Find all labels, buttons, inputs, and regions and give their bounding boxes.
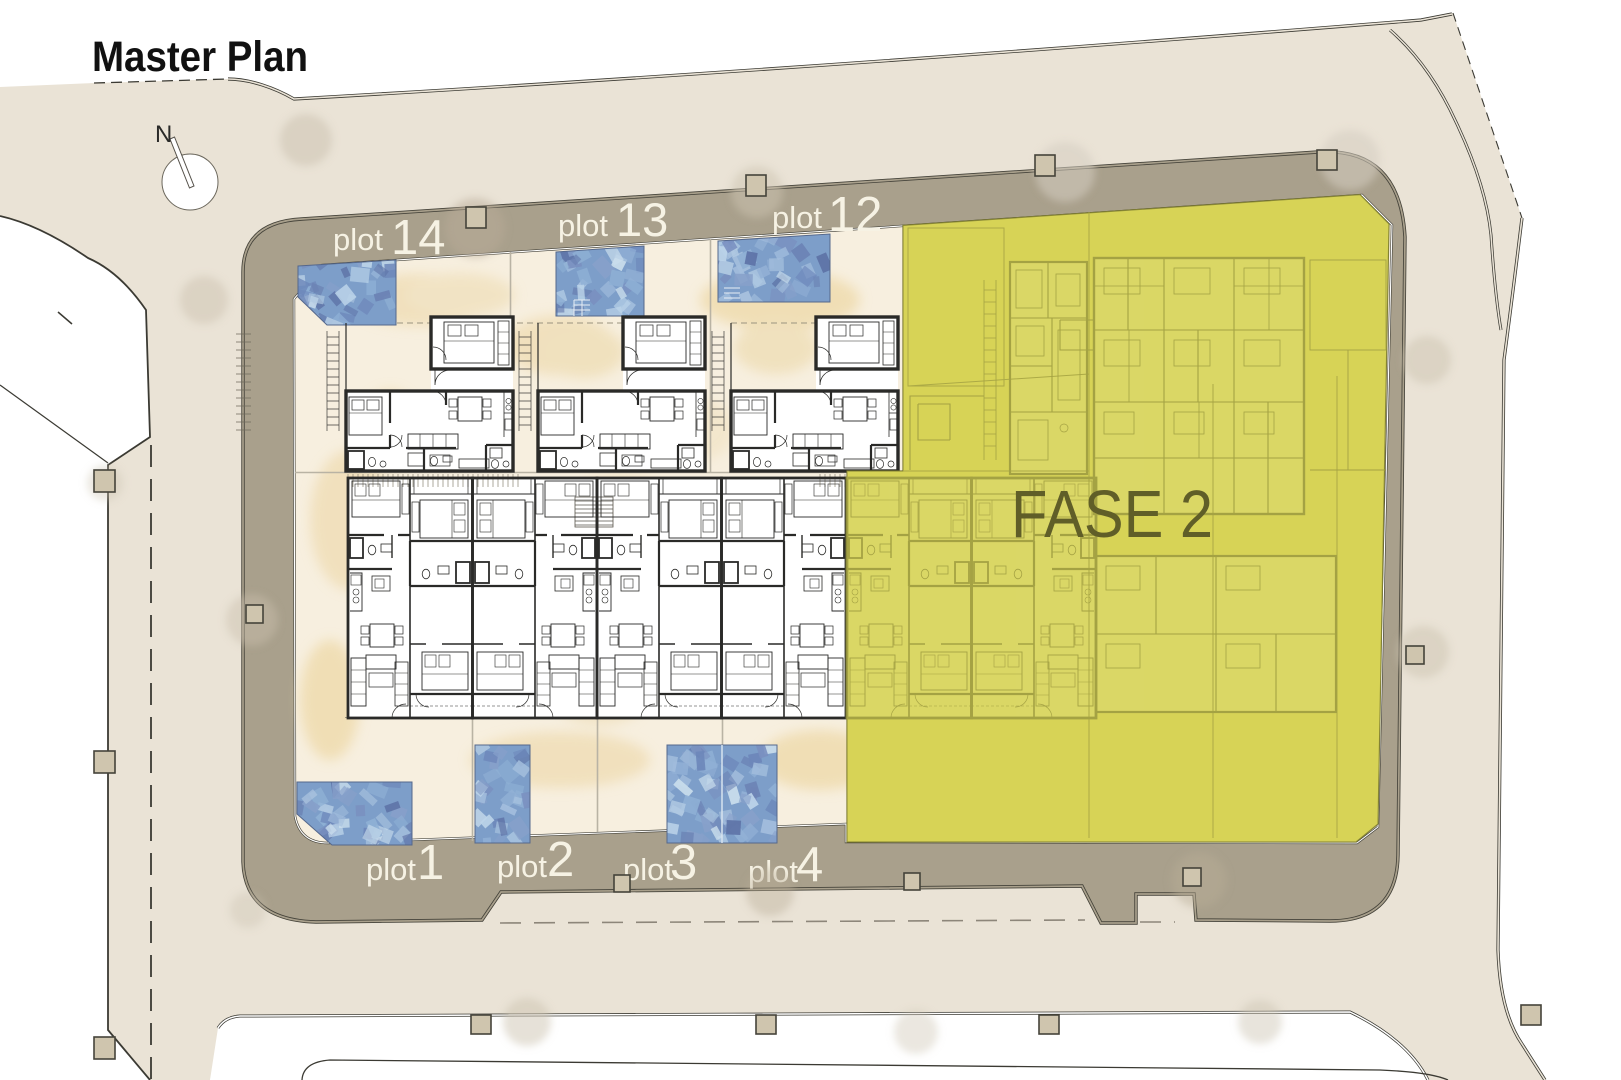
svg-text:13: 13 <box>616 193 668 246</box>
svg-text:14: 14 <box>391 211 446 265</box>
svg-text:plot: plot <box>333 222 383 257</box>
svg-text:4: 4 <box>796 838 823 892</box>
svg-text:2: 2 <box>547 833 574 887</box>
svg-text:plot: plot <box>558 208 608 243</box>
svg-text:12: 12 <box>828 188 883 242</box>
svg-text:N: N <box>155 121 172 148</box>
svg-text:plot: plot <box>366 852 416 887</box>
svg-text:plot: plot <box>772 200 822 235</box>
svg-text:3: 3 <box>670 836 697 890</box>
svg-text:1: 1 <box>417 836 444 890</box>
svg-text:Master Plan: Master Plan <box>92 33 308 81</box>
svg-text:FASE 2: FASE 2 <box>1011 477 1213 552</box>
svg-text:plot: plot <box>497 849 547 884</box>
